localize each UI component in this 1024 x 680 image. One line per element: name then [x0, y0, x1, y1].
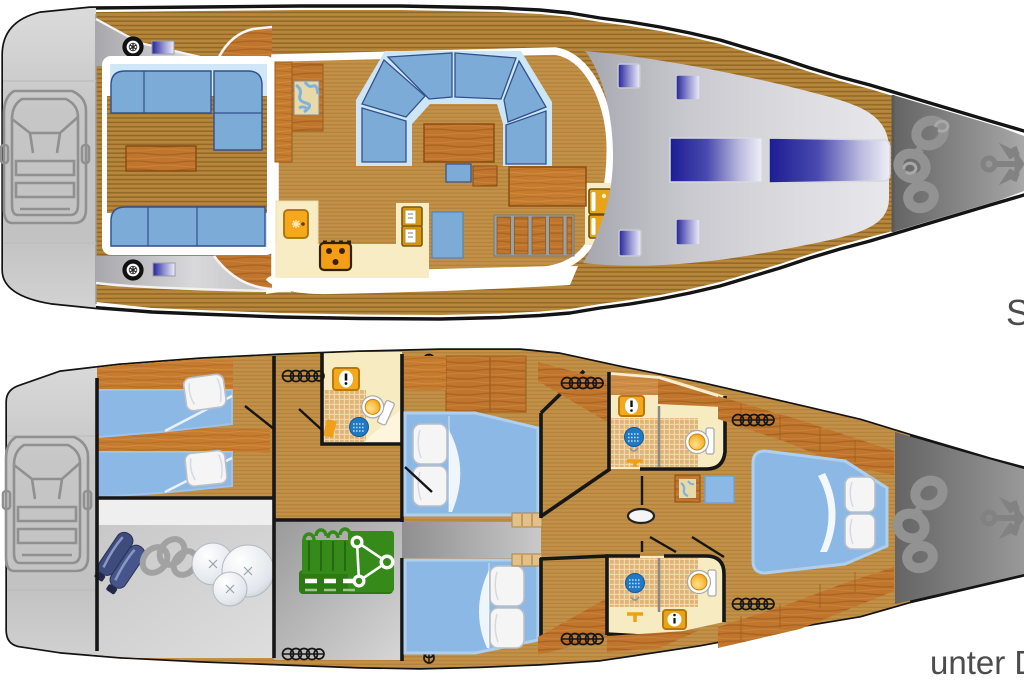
svg-text:Salon: Salon [1006, 292, 1024, 333]
svg-text:unter Deck: unter Deck [930, 644, 1024, 680]
